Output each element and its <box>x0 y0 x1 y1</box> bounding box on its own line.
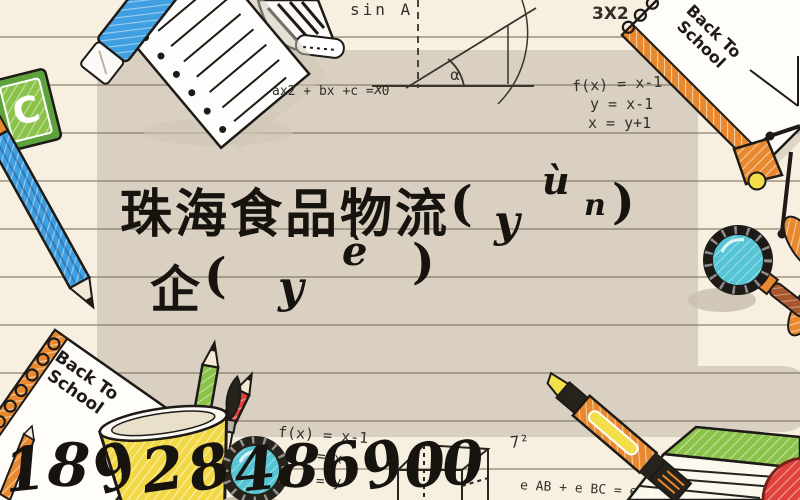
phone-digit: 0 <box>439 432 486 495</box>
title-pinyin-n: n <box>584 188 606 223</box>
angle-label: α <box>450 66 460 84</box>
sin-label: sin A <box>350 0 413 19</box>
blue-pencil <box>0 116 103 312</box>
title-hanzi-line2: 企 <box>150 250 203 322</box>
multiply-label: 3X2 <box>592 4 629 24</box>
leaf-doodle <box>776 211 800 276</box>
phone-digit: 1 <box>1 438 49 500</box>
title-pinyin-u: ù <box>542 158 570 203</box>
orange-marker <box>539 367 691 500</box>
title-paren-close-2: ) <box>412 234 435 290</box>
quadratic-formula: ax2 + bx +c = 0 <box>272 84 389 99</box>
doodles-layer: C x α <box>0 0 800 500</box>
title-pinyin-y2: y <box>278 262 304 313</box>
poster: e AB + e BC = e AB <box>0 0 800 500</box>
title-pinyin-e: è <box>342 228 367 275</box>
title-paren-open-1: ( <box>450 176 473 232</box>
title-pinyin-y1: y <box>494 196 520 247</box>
seven-squared: 7² <box>509 431 530 452</box>
y-formula: y = x-1 <box>590 95 653 113</box>
title-hanzi-line1: 珠海食品物流 <box>120 172 450 247</box>
phone-digit: 2 <box>138 437 188 500</box>
title-paren-open-2: ( <box>204 248 227 304</box>
phone-digit: 4 <box>231 438 279 500</box>
title-paren-close-1: ) <box>612 174 635 230</box>
magnifier <box>688 230 800 320</box>
x-formula: x = y+1 <box>588 114 651 132</box>
phone-digit: 8 <box>277 436 321 497</box>
